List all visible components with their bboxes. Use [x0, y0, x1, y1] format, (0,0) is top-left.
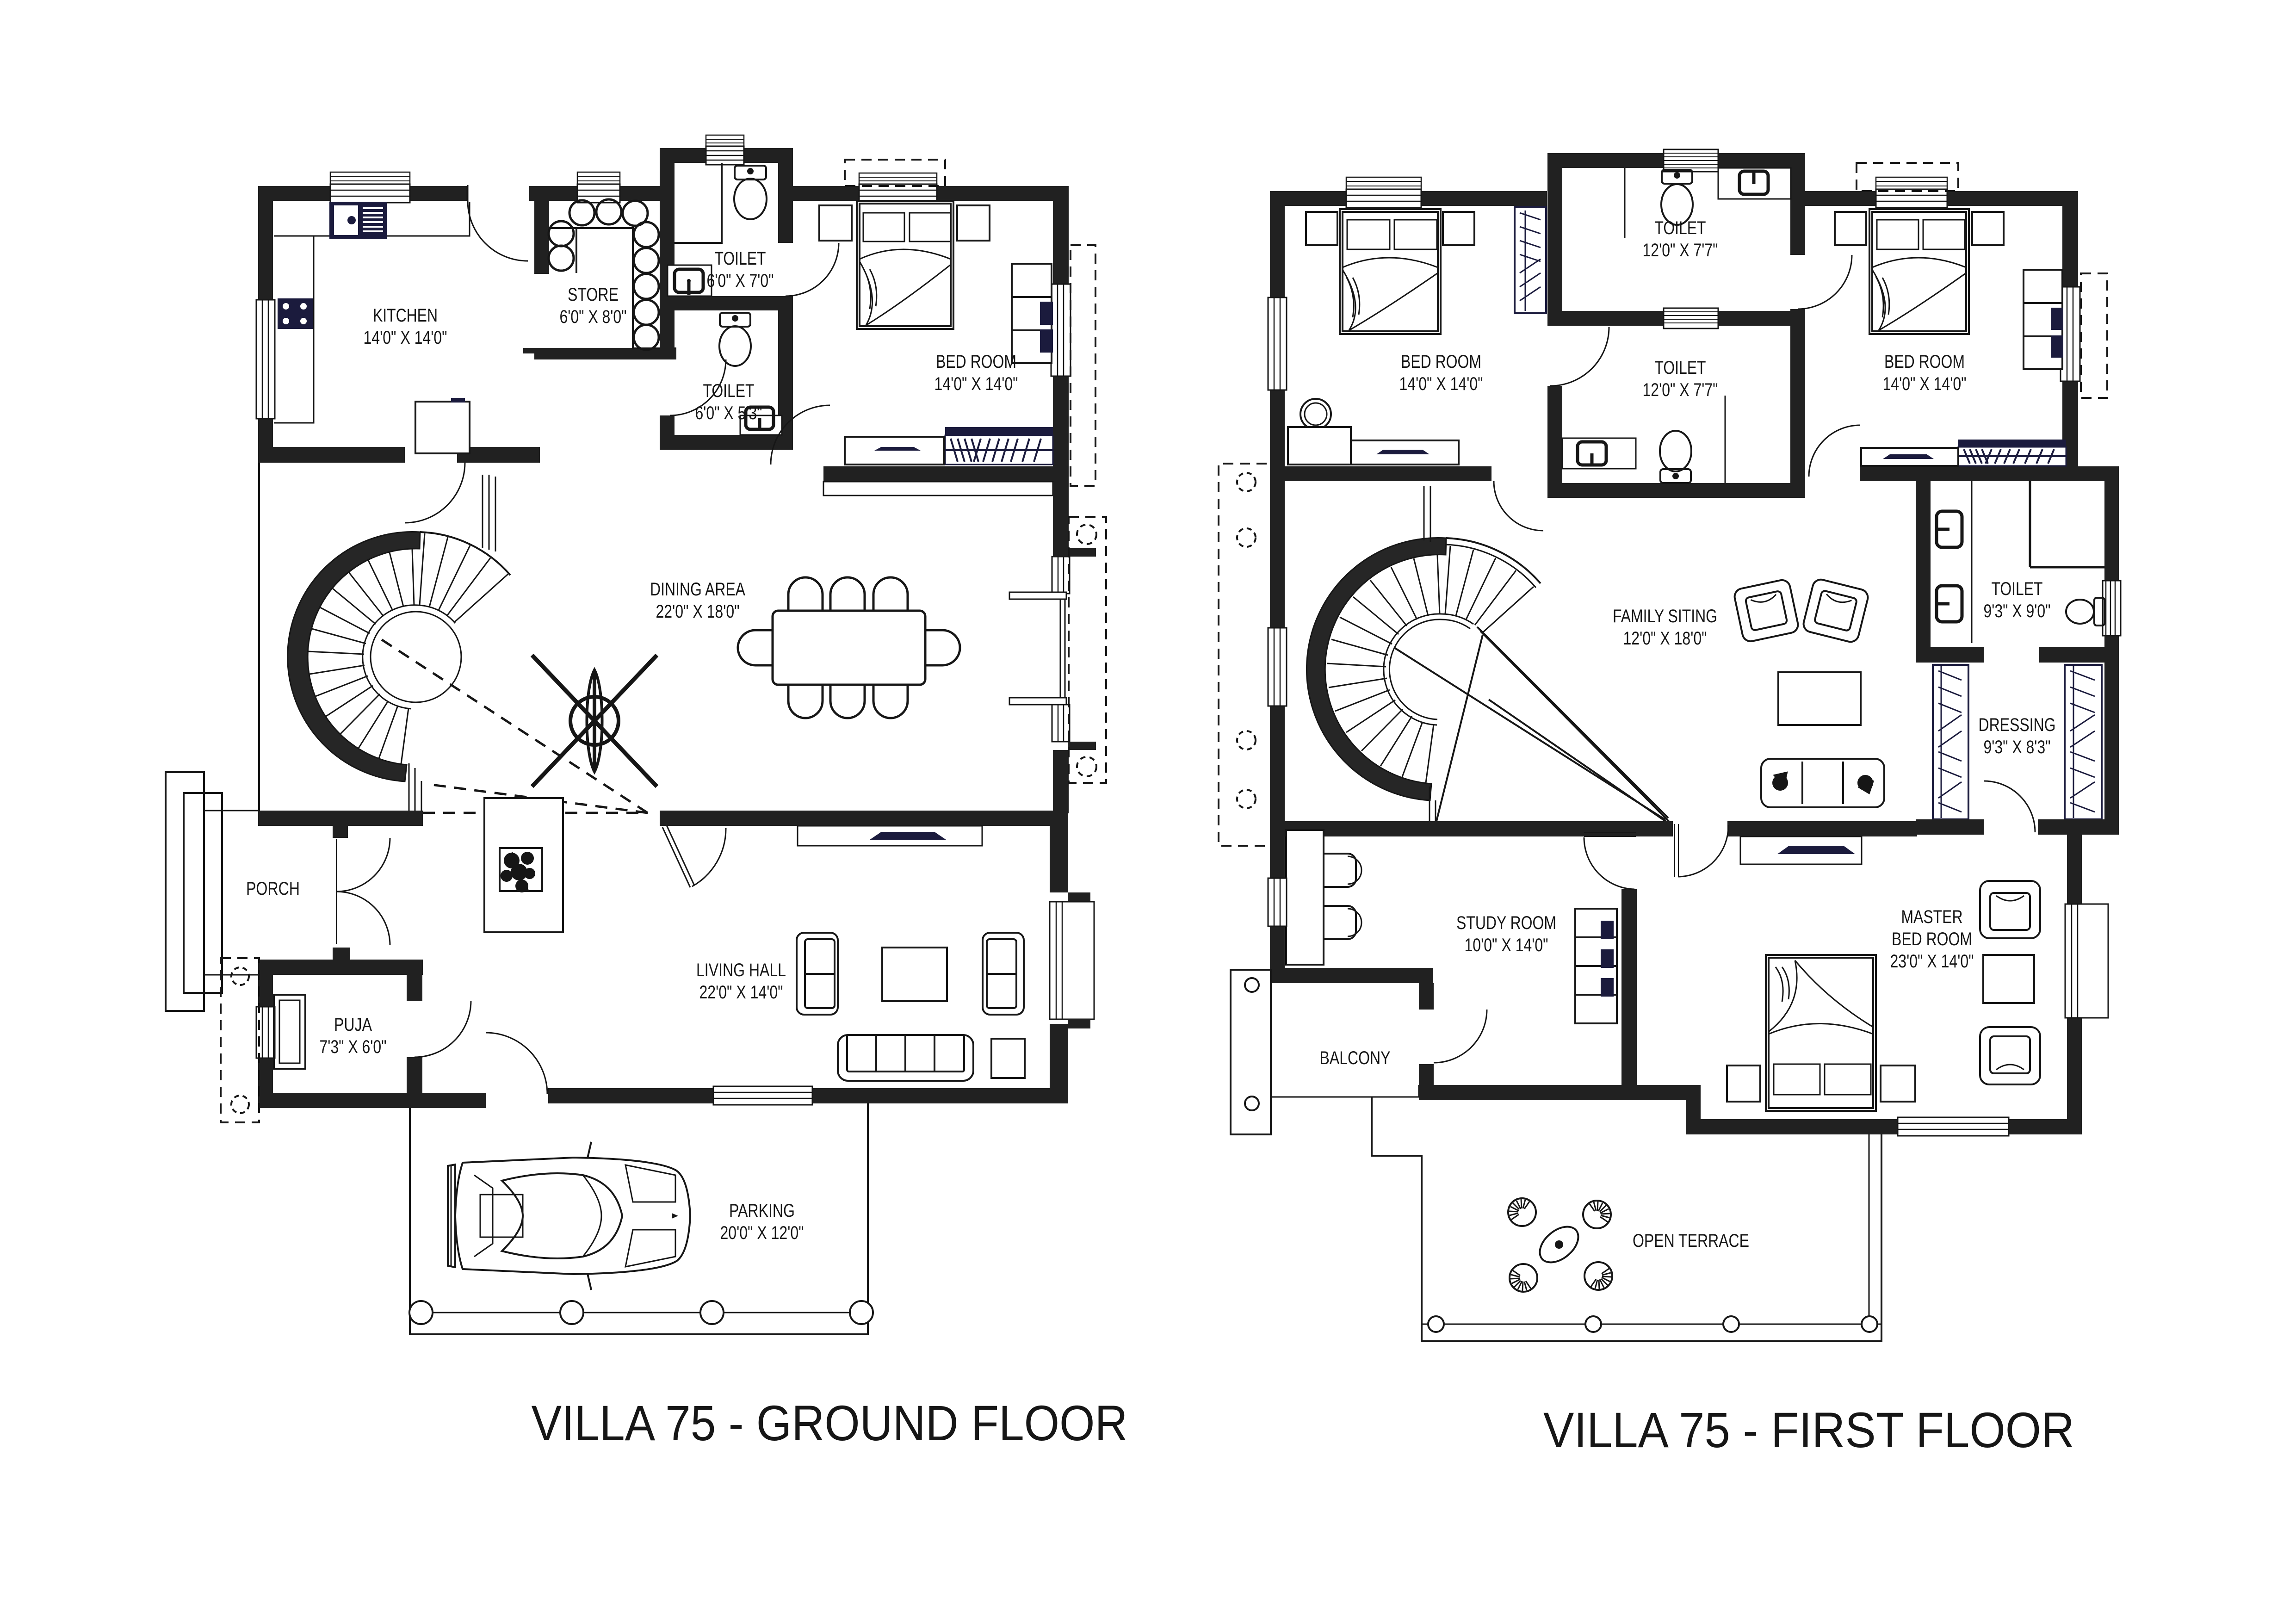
- svg-text:9'3" X 9'0": 9'3" X 9'0": [1984, 601, 2051, 621]
- svg-text:12'0" X 7'7": 12'0" X 7'7": [1643, 240, 1718, 260]
- svg-text:OPEN TERRACE: OPEN TERRACE: [1633, 1231, 1749, 1251]
- svg-text:22'0" X 14'0": 22'0" X 14'0": [699, 982, 783, 1003]
- svg-text:DRESSING: DRESSING: [1979, 715, 2056, 735]
- svg-text:6'0" X 7'0": 6'0" X 7'0": [707, 271, 774, 291]
- svg-text:TOILET: TOILET: [1655, 358, 1706, 378]
- svg-text:PORCH: PORCH: [246, 879, 300, 899]
- svg-text:BED ROOM: BED ROOM: [1884, 352, 1965, 372]
- svg-text:23'0" X 14'0": 23'0" X 14'0": [1890, 951, 1974, 972]
- svg-text:PARKING: PARKING: [729, 1201, 795, 1221]
- svg-text:VILLA 75 - FIRST FLOOR: VILLA 75 - FIRST FLOOR: [1543, 1402, 2074, 1458]
- svg-text:12'0" X 18'0": 12'0" X 18'0": [1623, 628, 1707, 649]
- svg-text:LIVING HALL: LIVING HALL: [696, 960, 786, 980]
- svg-text:PUJA: PUJA: [334, 1015, 372, 1035]
- svg-text:14'0" X 14'0": 14'0" X 14'0": [1399, 374, 1483, 394]
- svg-text:BALCONY: BALCONY: [1320, 1048, 1391, 1068]
- svg-text:BED ROOM: BED ROOM: [1892, 929, 1972, 949]
- svg-text:VILLA 75 - GROUND FLOOR: VILLA 75 - GROUND FLOOR: [532, 1395, 1128, 1451]
- svg-text:TOILET: TOILET: [1655, 218, 1706, 238]
- svg-text:TOILET: TOILET: [715, 248, 766, 269]
- svg-text:14'0" X 14'0": 14'0" X 14'0": [1883, 374, 1967, 394]
- svg-text:10'0" X 14'0": 10'0" X 14'0": [1465, 935, 1548, 955]
- svg-text:14'0" X 14'0": 14'0" X 14'0": [364, 328, 447, 348]
- svg-text:DINING AREA: DINING AREA: [650, 579, 745, 600]
- svg-text:22'0" X 18'0": 22'0" X 18'0": [656, 601, 740, 622]
- svg-text:FAMILY SITING: FAMILY SITING: [1613, 606, 1717, 626]
- svg-text:BED ROOM: BED ROOM: [936, 352, 1016, 372]
- svg-text:TOILET: TOILET: [1992, 579, 2043, 599]
- svg-text:6'0" X 8'0": 6'0" X 8'0": [560, 307, 627, 327]
- svg-text:TOILET: TOILET: [703, 381, 755, 401]
- svg-text:6'0" X 5'3": 6'0" X 5'3": [695, 403, 762, 423]
- svg-text:14'0" X 14'0": 14'0" X 14'0": [934, 374, 1018, 394]
- svg-text:KITCHEN: KITCHEN: [373, 305, 438, 326]
- svg-text:STUDY ROOM: STUDY ROOM: [1456, 913, 1556, 933]
- svg-text:BED ROOM: BED ROOM: [1401, 352, 1481, 372]
- svg-text:MASTER: MASTER: [1901, 907, 1963, 927]
- svg-text:7'3" X 6'0": 7'3" X 6'0": [320, 1037, 387, 1057]
- svg-text:20'0" X 12'0": 20'0" X 12'0": [720, 1223, 804, 1243]
- svg-text:12'0" X 7'7": 12'0" X 7'7": [1643, 380, 1718, 400]
- svg-text:9'3" X 8'3": 9'3" X 8'3": [1984, 737, 2051, 757]
- svg-text:STORE: STORE: [568, 285, 619, 305]
